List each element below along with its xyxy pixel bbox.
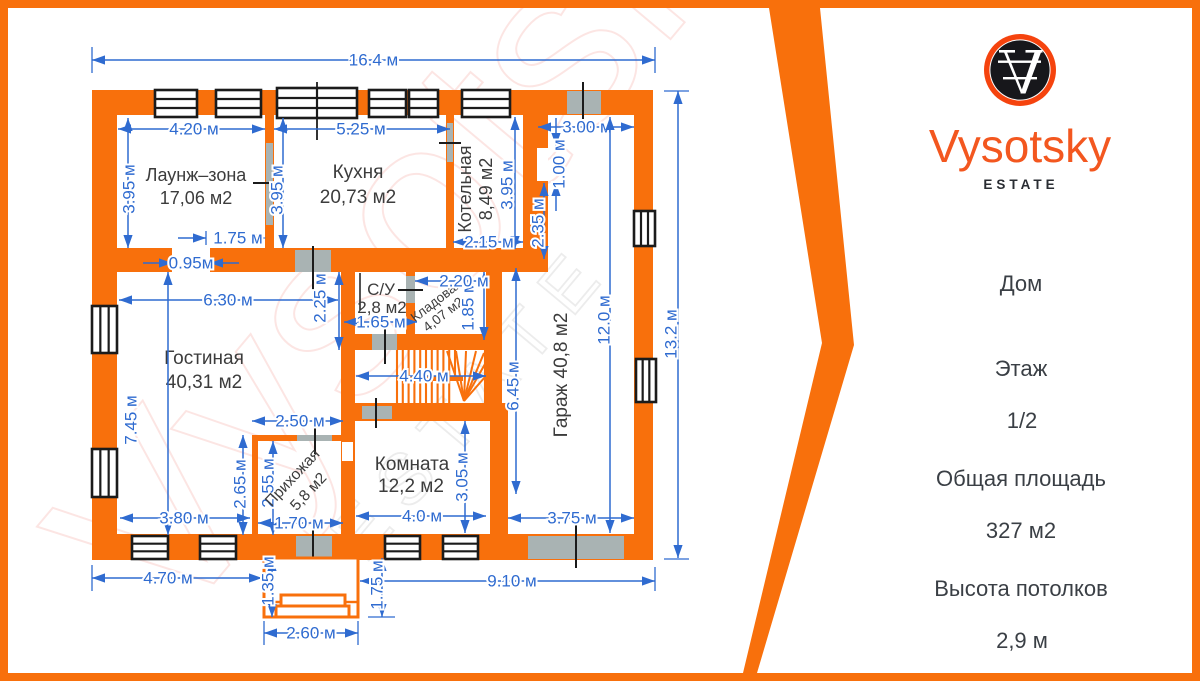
svg-text:17,06 м2: 17,06 м2 [160,188,232,208]
svg-text:1.65 м: 1.65 м [356,313,406,332]
svg-text:8,49 м2: 8,49 м2 [476,158,496,220]
svg-text:Этаж: Этаж [995,356,1048,381]
svg-text:С/У: С/У [367,280,395,299]
svg-text:40,31 м2: 40,31 м2 [166,372,242,393]
svg-text:3.00 м: 3.00 м [562,118,612,137]
svg-text:ESTATE: ESTATE [983,177,1058,192]
svg-text:1.00 м: 1.00 м [550,139,569,189]
svg-text:4.40 м: 4.40 м [399,367,449,386]
svg-text:2.15 м: 2.15 м [464,233,514,252]
svg-text:1.70 м: 1.70 м [274,514,324,533]
svg-text:20,73 м2: 20,73 м2 [320,187,396,208]
svg-text:4.0 м: 4.0 м [402,507,442,526]
svg-text:Гостиная: Гостиная [164,348,244,369]
svg-text:Vysotsky: Vysotsky [929,120,1111,172]
svg-text:4.70 м: 4.70 м [143,569,193,588]
svg-text:2.20 м: 2.20 м [439,272,489,291]
svg-text:16.4 м: 16.4 м [349,51,399,70]
svg-text:2.60 м: 2.60 м [286,624,336,643]
svg-text:6.45 м: 6.45 м [504,361,523,411]
svg-text:1.35 м: 1.35 м [259,556,278,606]
svg-text:12.0 м: 12.0 м [595,295,614,345]
svg-text:Высота потолков: Высота потолков [934,576,1108,601]
svg-text:3.75 м: 3.75 м [547,509,597,528]
svg-text:7.45 м: 7.45 м [122,395,141,445]
svg-text:Гараж 40,8 м2: Гараж 40,8 м2 [551,313,572,438]
svg-text:Общая площадь: Общая площадь [936,466,1106,491]
svg-text:3.95 м: 3.95 м [498,160,517,210]
svg-text:Кухня: Кухня [333,162,384,183]
svg-text:1/2: 1/2 [1007,408,1038,433]
svg-text:4.20 м: 4.20 м [169,120,219,139]
svg-text:3.95 м: 3.95 м [120,164,139,214]
svg-text:2.35 м: 2.35 м [529,198,548,248]
svg-text:6.30 м: 6.30 м [203,291,253,310]
svg-text:9.10 м: 9.10 м [487,572,537,591]
svg-text:2,9 м: 2,9 м [996,628,1048,653]
svg-text:327 м2: 327 м2 [986,518,1056,543]
svg-text:0.95м: 0.95м [169,254,214,273]
svg-text:13.2 м: 13.2 м [662,309,681,359]
svg-text:Котельная: Котельная [455,145,475,232]
svg-text:1.75 м: 1.75 м [368,560,387,610]
svg-text:3.05 м: 3.05 м [453,452,472,502]
svg-text:Комната: Комната [375,454,450,475]
svg-text:2.65 м: 2.65 м [231,459,250,509]
svg-text:3.95 м: 3.95 м [268,165,287,215]
svg-text:1.75 м: 1.75 м [213,229,263,248]
svg-text:Лаунж–зона: Лаунж–зона [146,165,248,185]
svg-text:2.50 м: 2.50 м [275,412,325,431]
svg-text:12,2 м2: 12,2 м2 [378,476,444,497]
svg-text:3.80 м: 3.80 м [159,509,209,528]
svg-text:5.25 м: 5.25 м [336,120,386,139]
svg-text:Дом: Дом [1000,271,1043,296]
svg-text:2.25 м: 2.25 м [311,273,330,323]
